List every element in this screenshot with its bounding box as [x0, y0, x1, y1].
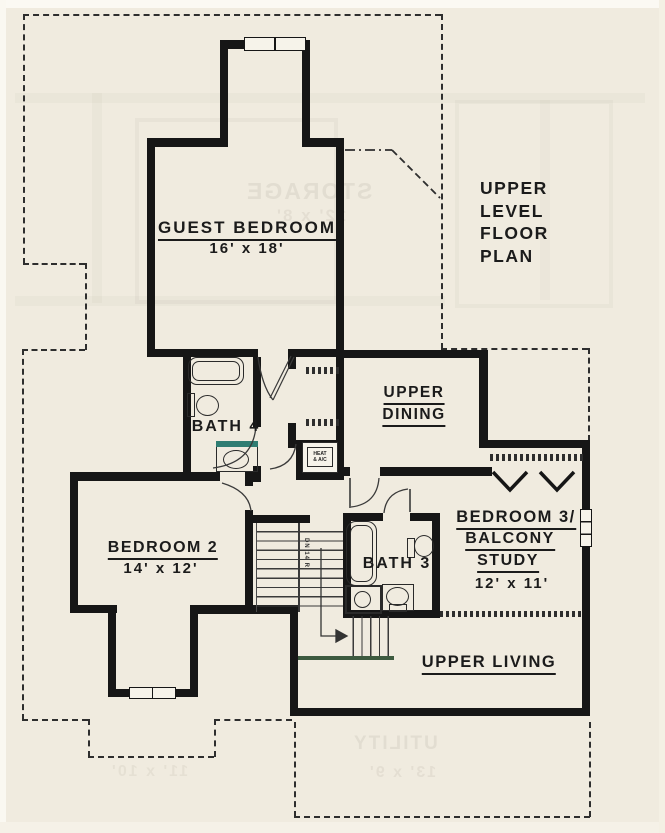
room-name: BEDROOM 2: [108, 539, 218, 560]
floor-plan-page: STORAGE 12' x 8' UTILITY 13' x 9' 11' x …: [0, 0, 665, 833]
room-label-bath-3: BATH 3: [363, 555, 432, 573]
door-arc: [258, 357, 273, 400]
room-label-upper-dining-2: DINING: [382, 406, 445, 427]
room-dims-bedroom-2: 14' x 12': [123, 560, 198, 577]
door-leaf: [273, 357, 294, 400]
room-label-bath-4: BATH 4: [192, 418, 261, 436]
door-arc: [384, 489, 408, 513]
stair-arrow-head-icon: [336, 630, 347, 642]
plan-linework: [0, 0, 665, 833]
railing-chevron-icon: [493, 472, 527, 490]
room-name: DINING: [382, 406, 445, 427]
room-label-bedroom-3-1: BEDROOM 3/: [456, 508, 576, 530]
room-dims-guest-bedroom: 16' x 18': [209, 240, 284, 257]
door-arc: [351, 478, 379, 507]
room-label-bedroom-3-3: STUDY: [477, 552, 539, 573]
room-label-guest-bedroom: GUEST BEDROOM: [158, 218, 336, 241]
page-title: UPPER LEVEL FLOOR PLAN: [480, 177, 549, 267]
roof-diagonal-dashed: [392, 150, 440, 198]
room-name: BEDROOM 3/: [456, 508, 576, 530]
title-line: LEVEL: [480, 200, 549, 223]
room-name: GUEST BEDROOM: [158, 218, 336, 241]
room-label-bedroom-2: BEDROOM 2: [108, 539, 218, 560]
door-leaf: [270, 356, 291, 398]
stair-arrow-shaft: [321, 548, 337, 636]
room-label-bedroom-3-2: BALCONY: [465, 530, 555, 551]
room-label-upper-living: UPPER LIVING: [422, 653, 556, 675]
title-line: PLAN: [480, 245, 549, 268]
title-line: FLOOR: [480, 222, 549, 245]
room-name: UPPER LIVING: [422, 653, 556, 675]
room-dims-bedroom-3: 12' x 11': [475, 575, 549, 592]
railing-chevron-icon: [540, 472, 574, 490]
room-name: BALCONY: [465, 530, 555, 551]
room-name: STUDY: [477, 552, 539, 573]
title-line: UPPER: [480, 177, 549, 200]
room-name: UPPER: [384, 384, 445, 405]
room-label-upper-dining-1: UPPER: [384, 384, 445, 405]
door-arc: [222, 483, 251, 511]
door-arc: [270, 444, 296, 469]
